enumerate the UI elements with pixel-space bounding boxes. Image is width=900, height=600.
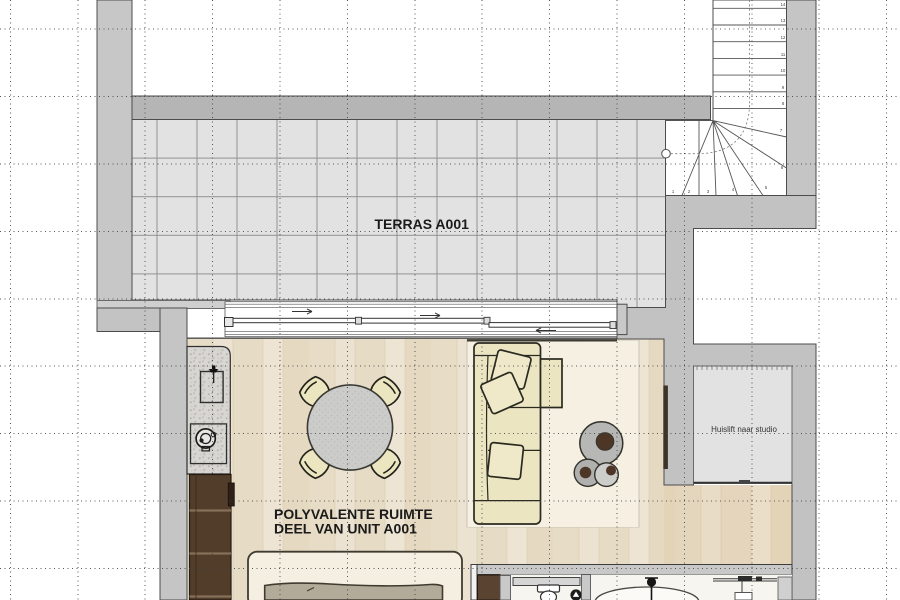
svg-text:10: 10: [781, 68, 786, 73]
svg-text:Huislift naar studio: Huislift naar studio: [711, 425, 777, 434]
svg-text:14: 14: [781, 2, 786, 7]
svg-text:DEEL VAN UNIT A001: DEEL VAN UNIT A001: [274, 521, 417, 537]
svg-text:11: 11: [781, 52, 786, 57]
svg-text:12: 12: [781, 35, 786, 40]
svg-text:13: 13: [781, 18, 786, 23]
svg-text:TERRAS A001: TERRAS A001: [375, 216, 470, 232]
